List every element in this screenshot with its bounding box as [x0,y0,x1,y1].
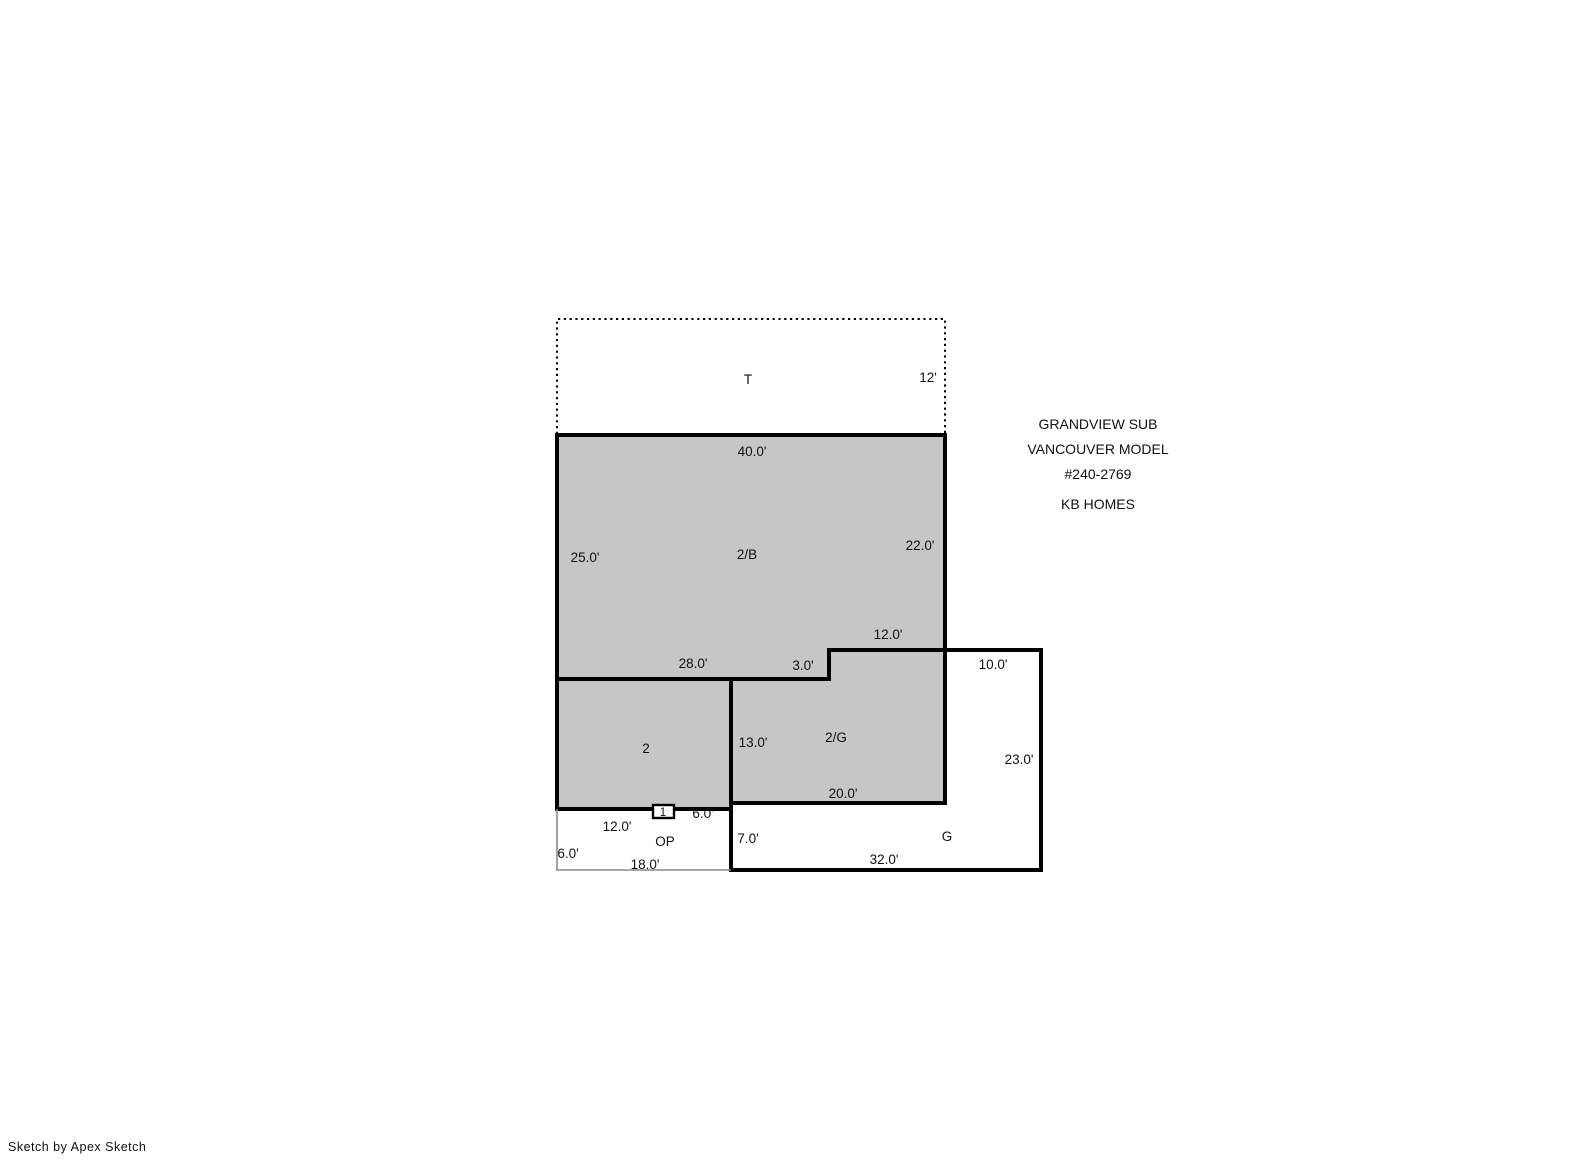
dim-2g-left: 13.0' [739,735,768,750]
dim-garage-right: 23.0' [1005,752,1034,767]
title-model: VANCOUVER MODEL [948,441,1248,457]
dim-garage-bottom: 32.0' [870,852,899,867]
title-builder: KB HOMES [948,496,1248,512]
dim-2b-bottom: 28.0' [679,656,708,671]
dim-garage-left: 7.0' [737,831,758,846]
label-marker-1: 1 [660,807,666,819]
dim-2b-right: 22.0' [906,538,935,553]
dim-2b-top: 40.0' [738,444,767,459]
dim-porch-top-right: 6.0' [692,806,713,821]
footer-credit: Sketch by Apex Sketch [8,1140,146,1154]
floorplan-drawing: T 12' 40.0' 25.0' 2/B 22.0' 12.0' 28.0' … [0,0,1585,1163]
label-area-t: T [744,372,752,387]
label-area-2: 2 [642,741,650,756]
dim-2b-notch-width: 12.0' [874,627,903,642]
sketch-canvas: T 12' 40.0' 25.0' 2/B 22.0' 12.0' 28.0' … [0,0,1585,1163]
label-area-2g: 2/G [825,730,847,745]
dim-porch-top-left: 12.0' [603,819,632,834]
dim-2g-bottom: 20.0' [829,786,858,801]
label-area-2b: 2/B [737,547,757,562]
label-garage: G [942,829,953,844]
dim-garage-top: 10.0' [979,657,1008,672]
label-porch: OP [655,834,675,849]
dim-porch-left: 6.0' [557,846,578,861]
title-subdivision: GRANDVIEW SUB [948,416,1248,432]
title-plan-number: #240-2769 [948,466,1248,482]
dim-2b-left: 25.0' [571,550,600,565]
dim-t-right: 12' [919,370,937,385]
dim-porch-bottom: 18.0' [631,857,660,872]
dim-2b-notch-height: 3.0' [792,658,813,673]
